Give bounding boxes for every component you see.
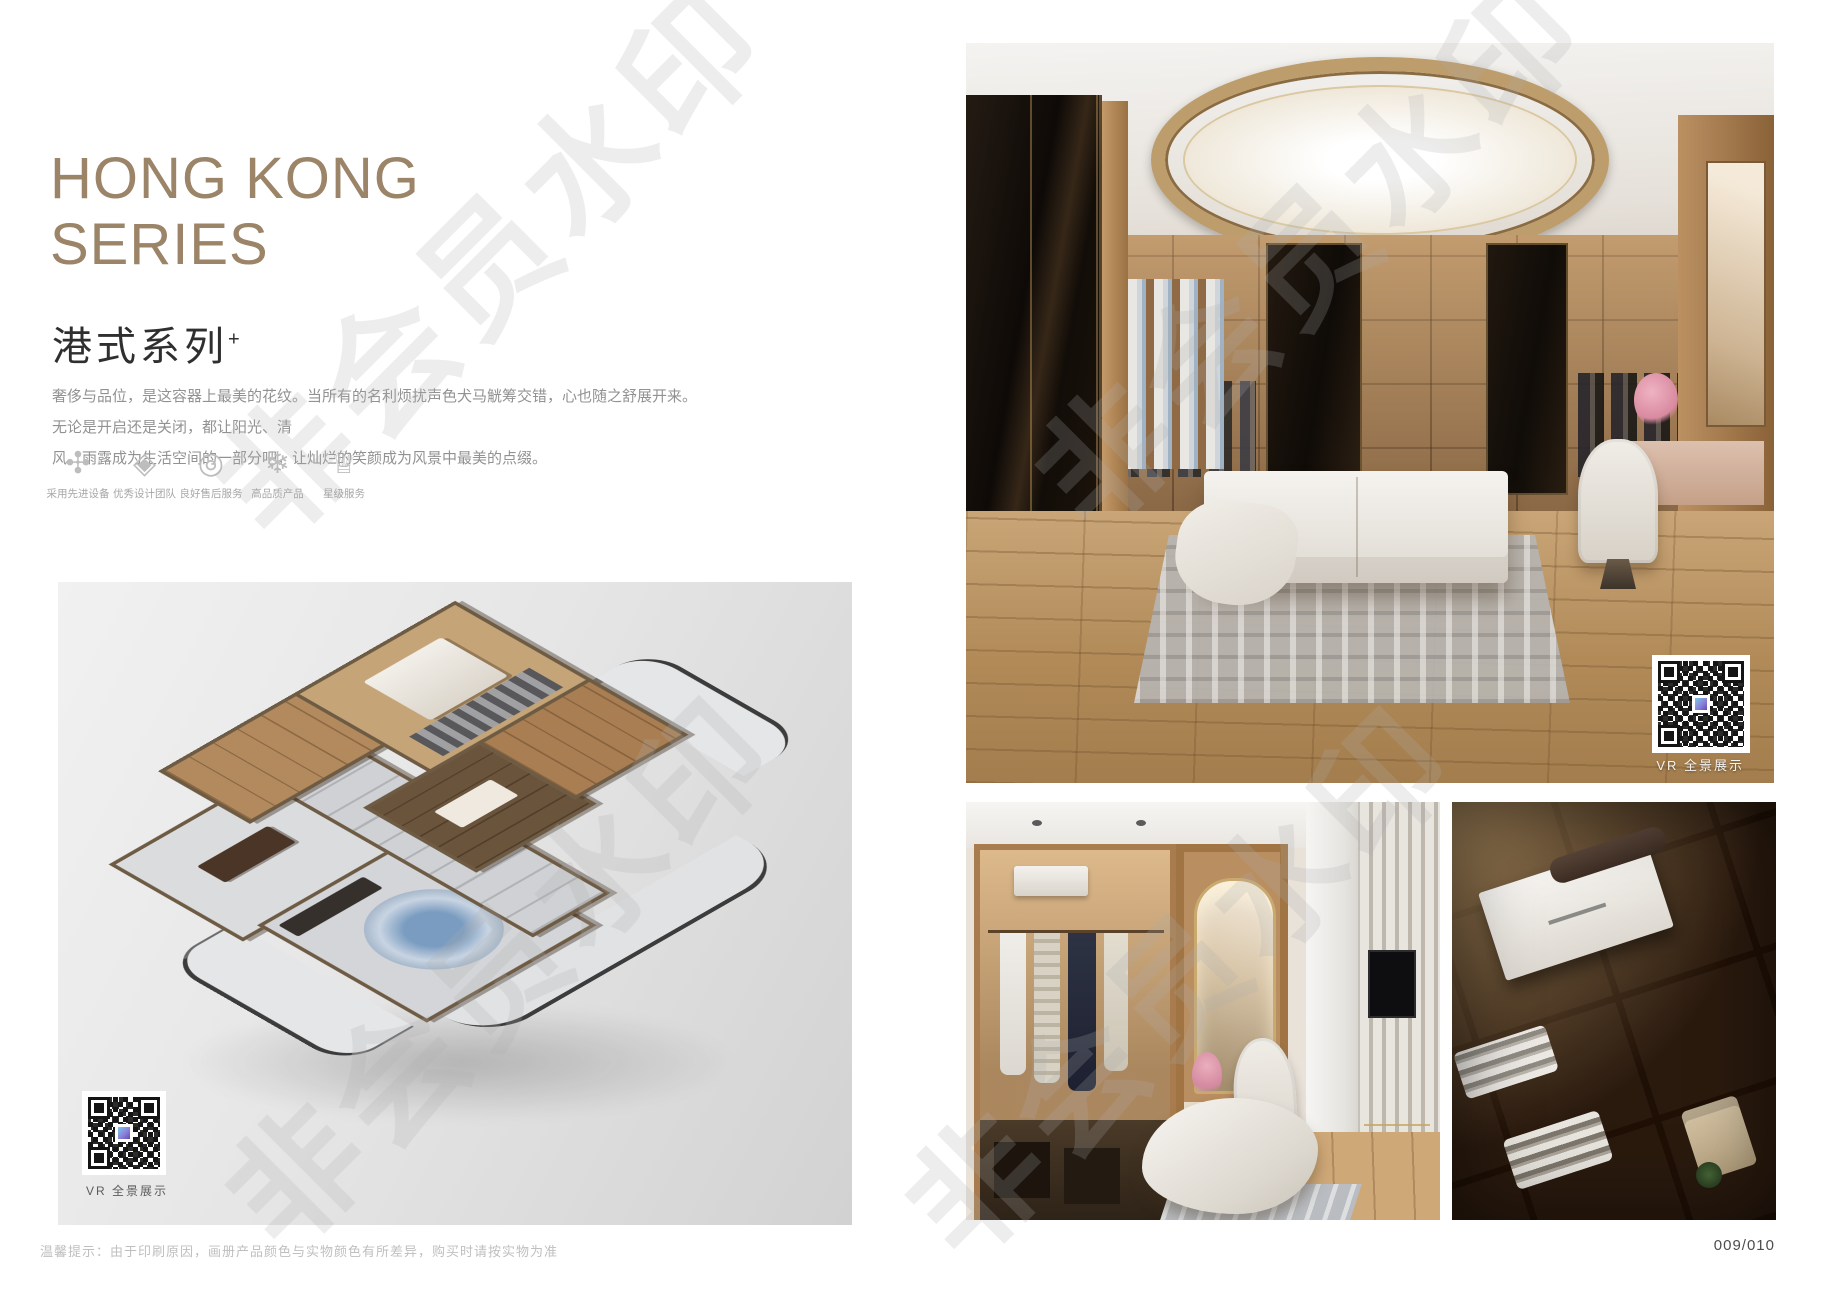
wall-tv (1370, 952, 1414, 1016)
photo-vignette (1452, 802, 1776, 1220)
series-title-line2: SERIES (50, 212, 420, 278)
study-desk (434, 779, 519, 828)
series-subtitle-superscript: + (228, 329, 244, 351)
white-upholstered-chair (1578, 439, 1658, 563)
ring-inner-light (1183, 85, 1577, 235)
pink-flowers (1634, 373, 1678, 427)
feature-advanced-equipment: ✣ 采用先进设备 (46, 445, 110, 501)
diamond-ornament-icon: ◈ (133, 445, 156, 483)
hanging-garment (1104, 933, 1128, 1071)
feature-label: 高品质产品 (251, 486, 304, 501)
vanity-mirror (1706, 161, 1766, 427)
page-number: 009/010 (1640, 1237, 1775, 1254)
qr-finder-icon (138, 1097, 160, 1119)
series-subtitle-text: 港式系列 (52, 325, 228, 369)
qr-finder-icon (88, 1147, 110, 1169)
series-title-line1: HONG KONG (50, 146, 420, 212)
feature-star-service: ♕ 星级服务 (312, 445, 376, 501)
feature-after-sales: ◎ 良好售后服务 (179, 445, 243, 501)
series-title-english: HONG KONG SERIES (50, 146, 420, 278)
feature-label: 采用先进设备 (47, 486, 110, 501)
qr-finder-icon (1658, 661, 1680, 683)
shelf-closeup-photo (1452, 802, 1776, 1220)
main-walkin-closet-photo: VR 全景展示 (966, 43, 1774, 783)
floorplan-isometric (58, 605, 844, 1059)
floorplan-render (98, 602, 798, 1162)
vr-cube-logo-icon (1692, 695, 1710, 713)
ceiling-spotlight-icon (1032, 820, 1042, 826)
main-photo-vr-label: VR 全景展示 (1656, 755, 1744, 774)
qr-modules (88, 1097, 160, 1169)
pinwheel-ornament-icon: ✣ (65, 445, 90, 483)
storage-bins (994, 1142, 1050, 1198)
feature-icon-row: ✣ 采用先进设备 ◈ 优秀设计团队 ◎ 良好售后服务 ❄ 高品质产品 ♕ 星级服… (46, 445, 376, 501)
floorplan-panel: VR 全景展示 (58, 582, 852, 1225)
snowflake-icon: ❄ (265, 445, 290, 483)
storage-box (1014, 866, 1088, 896)
hanging-garment (1068, 933, 1096, 1091)
hanging-garment (1034, 933, 1060, 1083)
series-subtitle-chinese: 港式系列+ (52, 314, 244, 372)
dining-table (197, 826, 296, 883)
qr-finder-icon (88, 1097, 110, 1119)
qr-modules (1658, 661, 1744, 747)
vr-cube-logo-icon (115, 1124, 133, 1142)
crown-icon: ♕ (331, 445, 358, 483)
feature-label: 星级服务 (323, 486, 365, 501)
gold-ring-chandelier (1151, 57, 1609, 263)
dark-glass-cabinet (1486, 243, 1568, 495)
series-description-line1: 奢侈与品位，是这容器上最美的花纹。当所有的名利烦扰声色犬马觥筹交错，心也随之舒展… (52, 381, 702, 443)
dressing-area-photo (966, 802, 1440, 1220)
dark-glass-cabinet (1266, 243, 1362, 501)
main-photo-vr-qr-code (1652, 655, 1750, 753)
feature-label: 优秀设计团队 (113, 486, 176, 501)
ceiling-spotlight-icon (1136, 820, 1146, 826)
qr-finder-icon (1658, 725, 1680, 747)
floorplan-vr-qr-code (82, 1091, 166, 1175)
qr-finder-icon (1722, 661, 1744, 683)
feature-label: 良好售后服务 (180, 486, 243, 501)
print-disclaimer: 温馨提示：由于印刷原因，画册产品颜色与实物颜色有所差异，购买时请按实物为准 (40, 1241, 558, 1260)
feature-quality-product: ❄ 高品质产品 (246, 445, 310, 501)
catalog-page: HONG KONG SERIES 港式系列+ 奢侈与品位，是这容器上最美的花纹。… (0, 0, 1836, 1307)
pink-flowers (1192, 1052, 1222, 1098)
ring-icon: ◎ (198, 445, 224, 483)
open-shelf-clothes (1128, 279, 1224, 469)
hanging-garment (1000, 933, 1026, 1075)
floorplan-vr-label: VR 全景展示 (86, 1182, 168, 1199)
feature-design-team: ◈ 优秀设计团队 (113, 445, 177, 501)
